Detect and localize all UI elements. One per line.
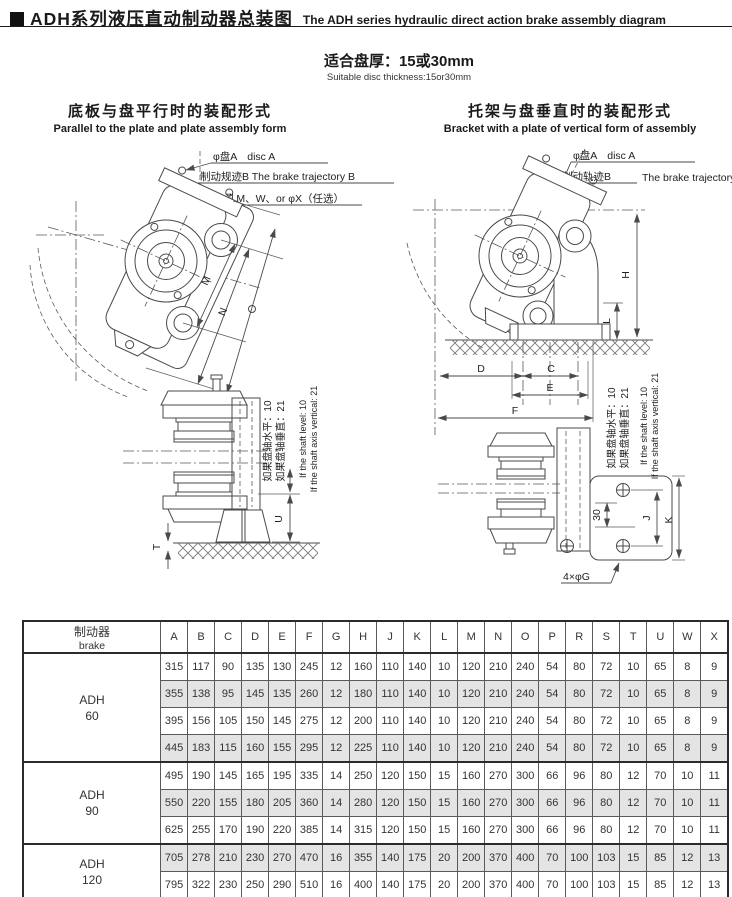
- table-cell: 54: [539, 735, 566, 763]
- table-cell: 225: [350, 735, 377, 763]
- table-cell: 120: [458, 681, 485, 708]
- table-cell: 85: [647, 844, 674, 872]
- table-cell: 400: [512, 872, 539, 897]
- table-cell: 155: [215, 790, 242, 817]
- table-cell: 80: [593, 817, 620, 845]
- spec-table: 制动器 brake ABCDEFGHJKLMNOPRSTUWX ADH60315…: [22, 620, 729, 897]
- table-cell: 140: [404, 681, 431, 708]
- table-cell: 66: [539, 817, 566, 845]
- right-note-en-level: If the shaft level: 10: [639, 387, 649, 465]
- table-cell: 70: [539, 872, 566, 897]
- table-cell: 400: [350, 872, 377, 897]
- table-cell: 70: [647, 817, 674, 845]
- table-cell: 145: [269, 708, 296, 735]
- table-cell: 210: [485, 735, 512, 763]
- col-header-d: D: [242, 621, 269, 653]
- table-cell: 240: [512, 653, 539, 681]
- right-diagram-heading: 托架与盘垂直时的装配形式 Bracket with a plate of ver…: [430, 100, 710, 135]
- dim-label-e: E: [546, 382, 553, 394]
- table-cell: 12: [620, 762, 647, 790]
- table-cell: 120: [458, 735, 485, 763]
- table-cell: 15: [431, 762, 458, 790]
- col-header-n: N: [485, 621, 512, 653]
- left-assembly-diagram: φ盘A disc A 制动规迹B The brake trajectory B …: [28, 143, 400, 605]
- table-cell: 190: [242, 817, 269, 845]
- table-cell: 220: [188, 790, 215, 817]
- table-cell: 200: [458, 872, 485, 897]
- col-header-x: X: [701, 621, 728, 653]
- table-cell: 11: [701, 790, 728, 817]
- col-header-e: E: [269, 621, 296, 653]
- table-cell: 495: [161, 762, 188, 790]
- dim-label-t: T: [151, 543, 163, 550]
- table-cell: 9: [701, 681, 728, 708]
- table-cell: 360: [296, 790, 323, 817]
- dim-label-c: C: [547, 363, 555, 375]
- table-cell: 175: [404, 872, 431, 897]
- table-cell: 65: [647, 681, 674, 708]
- table-cell: 220: [269, 817, 296, 845]
- table-cell: 9: [701, 653, 728, 681]
- col-header-f: F: [296, 621, 323, 653]
- brake-header-cell: 制动器 brake: [23, 621, 161, 653]
- page-title-en: The ADH series hydraulic direct action b…: [303, 10, 666, 27]
- table-cell: 270: [269, 844, 296, 872]
- table-cell: 210: [215, 844, 242, 872]
- table-cell: 195: [269, 762, 296, 790]
- col-header-r: R: [566, 621, 593, 653]
- table-cell: 65: [647, 653, 674, 681]
- model-cell-120: ADH120: [23, 844, 161, 897]
- table-cell: 14: [323, 817, 350, 845]
- table-cell: 335: [296, 762, 323, 790]
- table-cell: 16: [323, 872, 350, 897]
- table-cell: 280: [350, 790, 377, 817]
- table-cell: 66: [539, 762, 566, 790]
- right-trajectory-label-en: The brake trajectory B: [642, 172, 732, 184]
- table-cell: 8: [674, 653, 701, 681]
- page-title-zh: ADH系列液压直动制动器总装图: [30, 6, 293, 31]
- table-cell: 110: [377, 708, 404, 735]
- table-cell: 130: [269, 653, 296, 681]
- table-cell: 315: [161, 653, 188, 681]
- table-cell: 54: [539, 681, 566, 708]
- left-note-en-vertical: If the shaft axis vertical: 21: [309, 386, 319, 493]
- table-cell: 210: [485, 681, 512, 708]
- brake-header-zh: 制动器: [24, 623, 160, 640]
- table-cell: 140: [377, 844, 404, 872]
- table-cell: 160: [458, 790, 485, 817]
- col-header-u: U: [647, 621, 674, 653]
- table-cell: 205: [269, 790, 296, 817]
- table-cell: 150: [404, 790, 431, 817]
- table-cell: 270: [485, 762, 512, 790]
- table-cell: 160: [458, 817, 485, 845]
- brake-header-en: brake: [24, 640, 160, 652]
- table-cell: 10: [620, 681, 647, 708]
- left-heading-zh: 底板与盘平行时的装配形式: [30, 100, 310, 121]
- table-cell: 16: [323, 844, 350, 872]
- table-cell: 72: [593, 681, 620, 708]
- table-cell: 20: [431, 872, 458, 897]
- right-assembly-diagram: φ盘A disc A 制动轨迹B The brake trajectory B: [405, 143, 732, 605]
- table-cell: 80: [566, 653, 593, 681]
- table-cell: 230: [242, 844, 269, 872]
- table-cell: 370: [485, 872, 512, 897]
- table-cell: 230: [215, 872, 242, 897]
- table-cell: 70: [647, 762, 674, 790]
- table-cell: 103: [593, 844, 620, 872]
- table-cell: 12: [674, 872, 701, 897]
- table-cell: 200: [458, 844, 485, 872]
- table-cell: 165: [242, 762, 269, 790]
- dim-label-k: K: [663, 516, 675, 523]
- table-cell: 385: [296, 817, 323, 845]
- table-cell: 12: [323, 653, 350, 681]
- table-cell: 190: [188, 762, 215, 790]
- table-cell: 150: [404, 762, 431, 790]
- table-cell: 395: [161, 708, 188, 735]
- catalog-page: ADH系列液压直动制动器总装图 The ADH series hydraulic…: [0, 0, 732, 897]
- left-note-en-level: If the shaft level: 10: [298, 400, 308, 478]
- table-cell: 370: [485, 844, 512, 872]
- dim-label-l: L: [601, 318, 613, 324]
- table-cell: 145: [242, 681, 269, 708]
- table-cell: 15: [431, 817, 458, 845]
- col-header-s: S: [593, 621, 620, 653]
- table-cell: 120: [458, 708, 485, 735]
- table-cell: 10: [674, 817, 701, 845]
- table-cell: 10: [620, 735, 647, 763]
- table-cell: 100: [566, 872, 593, 897]
- table-cell: 103: [593, 872, 620, 897]
- table-cell: 270: [485, 790, 512, 817]
- table-cell: 90: [215, 653, 242, 681]
- table-cell: 96: [566, 762, 593, 790]
- table-cell: 20: [431, 844, 458, 872]
- right-holes-label: 4×φG: [563, 571, 590, 583]
- table-cell: 65: [647, 708, 674, 735]
- table-cell: 8: [674, 735, 701, 763]
- dim-label-n: N: [216, 306, 230, 317]
- table-cell: 625: [161, 817, 188, 845]
- table-cell: 10: [431, 735, 458, 763]
- table-cell: 72: [593, 735, 620, 763]
- table-cell: 11: [701, 817, 728, 845]
- left-trajectory-label: 制动规迹B The brake trajectory B: [200, 170, 355, 183]
- title-bullet-icon: [10, 12, 24, 26]
- table-cell: 145: [215, 762, 242, 790]
- table-cell: 705: [161, 844, 188, 872]
- table-row: ADH9049519014516519533514250120150151602…: [23, 762, 728, 790]
- table-cell: 160: [242, 735, 269, 763]
- table-cell: 10: [620, 708, 647, 735]
- table-cell: 355: [350, 844, 377, 872]
- table-cell: 180: [350, 681, 377, 708]
- table-row: ADH6031511790135130245121601101401012021…: [23, 653, 728, 681]
- table-cell: 15: [431, 790, 458, 817]
- table-cell: 96: [566, 817, 593, 845]
- col-header-k: K: [404, 621, 431, 653]
- table-cell: 135: [269, 681, 296, 708]
- table-cell: 255: [188, 817, 215, 845]
- table-cell: 155: [269, 735, 296, 763]
- right-note-en-vertical: If the shaft axis vertical: 21: [650, 373, 660, 480]
- page-subtitle: 适合盘厚：15或30mm Suitable disc thickness:15o…: [231, 50, 567, 83]
- table-cell: 322: [188, 872, 215, 897]
- dim-label-30: 30: [591, 509, 603, 521]
- col-header-g: G: [323, 621, 350, 653]
- dim-label-j: J: [641, 515, 653, 520]
- left-heading-en: Parallel to the plate and plate assembly…: [30, 123, 310, 135]
- table-cell: 8: [674, 681, 701, 708]
- table-cell: 10: [431, 681, 458, 708]
- table-cell: 110: [377, 681, 404, 708]
- table-cell: 250: [350, 762, 377, 790]
- spec-table-head-row: 制动器 brake ABCDEFGHJKLMNOPRSTUWX: [23, 621, 728, 653]
- table-cell: 510: [296, 872, 323, 897]
- table-cell: 470: [296, 844, 323, 872]
- table-cell: 9: [701, 708, 728, 735]
- table-cell: 80: [566, 681, 593, 708]
- table-cell: 138: [188, 681, 215, 708]
- table-cell: 80: [566, 735, 593, 763]
- table-cell: 275: [296, 708, 323, 735]
- table-cell: 200: [350, 708, 377, 735]
- table-cell: 115: [215, 735, 242, 763]
- table-cell: 183: [188, 735, 215, 763]
- table-cell: 110: [377, 735, 404, 763]
- table-cell: 54: [539, 708, 566, 735]
- table-cell: 140: [377, 872, 404, 897]
- table-cell: 80: [593, 762, 620, 790]
- col-header-a: A: [161, 621, 188, 653]
- table-cell: 13: [701, 844, 728, 872]
- table-cell: 250: [242, 872, 269, 897]
- table-cell: 65: [647, 735, 674, 763]
- table-cell: 96: [566, 790, 593, 817]
- table-cell: 240: [512, 708, 539, 735]
- table-cell: 175: [404, 844, 431, 872]
- table-cell: 105: [215, 708, 242, 735]
- right-heading-zh: 托架与盘垂直时的装配形式: [430, 100, 710, 121]
- model-cell-60: ADH60: [23, 653, 161, 762]
- table-cell: 85: [647, 872, 674, 897]
- table-cell: 8: [674, 708, 701, 735]
- table-cell: 355: [161, 681, 188, 708]
- subtitle-zh: 适合盘厚：15或30mm: [231, 50, 567, 71]
- table-cell: 10: [431, 653, 458, 681]
- table-cell: 150: [242, 708, 269, 735]
- table-cell: 9: [701, 735, 728, 763]
- table-cell: 15: [620, 844, 647, 872]
- table-cell: 12: [323, 708, 350, 735]
- dim-label-h: H: [620, 271, 632, 279]
- table-cell: 10: [620, 653, 647, 681]
- table-cell: 400: [512, 844, 539, 872]
- table-cell: 240: [512, 681, 539, 708]
- spec-table-body: ADH6031511790135130245121601101401012021…: [23, 653, 728, 897]
- header-rule: [0, 26, 732, 27]
- table-cell: 10: [674, 762, 701, 790]
- table-cell: 170: [215, 817, 242, 845]
- table-cell: 12: [620, 790, 647, 817]
- table-cell: 245: [296, 653, 323, 681]
- table-cell: 80: [593, 790, 620, 817]
- page-header: ADH系列液压直动制动器总装图 The ADH series hydraulic…: [10, 6, 666, 31]
- table-cell: 240: [512, 735, 539, 763]
- table-cell: 10: [674, 790, 701, 817]
- table-cell: 300: [512, 817, 539, 845]
- table-cell: 120: [377, 790, 404, 817]
- col-header-p: P: [539, 621, 566, 653]
- col-header-h: H: [350, 621, 377, 653]
- table-cell: 54: [539, 653, 566, 681]
- col-header-c: C: [215, 621, 242, 653]
- col-header-b: B: [188, 621, 215, 653]
- col-header-l: L: [431, 621, 458, 653]
- left-disc-label: φ盘A disc A: [213, 150, 275, 163]
- table-cell: 140: [404, 735, 431, 763]
- table-cell: 300: [512, 790, 539, 817]
- subtitle-en: Suitable disc thickness:15or30mm: [231, 72, 567, 83]
- dim-label-u: U: [273, 515, 285, 523]
- right-disc-label: φ盘A disc A: [573, 149, 635, 162]
- left-diagram-heading: 底板与盘平行时的装配形式 Parallel to the plate and p…: [30, 100, 310, 135]
- col-header-m: M: [458, 621, 485, 653]
- table-cell: 140: [404, 653, 431, 681]
- table-cell: 140: [404, 708, 431, 735]
- col-header-o: O: [512, 621, 539, 653]
- table-row: ADH1207052782102302704701635514017520200…: [23, 844, 728, 872]
- left-note-zh-level: 如果盘轴水平：10: [261, 400, 274, 482]
- table-cell: 100: [566, 844, 593, 872]
- table-cell: 10: [431, 708, 458, 735]
- right-heading-en: Bracket with a plate of vertical form of…: [430, 123, 710, 135]
- table-cell: 72: [593, 708, 620, 735]
- table-cell: 70: [647, 790, 674, 817]
- table-cell: 95: [215, 681, 242, 708]
- table-cell: 795: [161, 872, 188, 897]
- table-cell: 260: [296, 681, 323, 708]
- model-cell-90: ADH90: [23, 762, 161, 844]
- right-note-zh-level: 如果盘轴水平：10: [605, 387, 618, 469]
- dim-label-f: F: [512, 405, 518, 417]
- table-cell: 12: [323, 735, 350, 763]
- table-cell: 150: [404, 817, 431, 845]
- table-cell: 72: [593, 653, 620, 681]
- col-header-w: W: [674, 621, 701, 653]
- table-cell: 14: [323, 762, 350, 790]
- table-cell: 445: [161, 735, 188, 763]
- table-cell: 14: [323, 790, 350, 817]
- table-cell: 180: [242, 790, 269, 817]
- right-note-zh-vertical: 如果盘轴垂直：21: [618, 387, 631, 469]
- table-cell: 66: [539, 790, 566, 817]
- table-cell: 160: [458, 762, 485, 790]
- table-cell: 11: [701, 762, 728, 790]
- table-cell: 135: [242, 653, 269, 681]
- table-cell: 156: [188, 708, 215, 735]
- table-cell: 550: [161, 790, 188, 817]
- table-cell: 210: [485, 653, 512, 681]
- table-cell: 12: [674, 844, 701, 872]
- dim-label-d: D: [477, 363, 485, 375]
- table-cell: 295: [296, 735, 323, 763]
- table-cell: 110: [377, 653, 404, 681]
- table-cell: 70: [539, 844, 566, 872]
- table-cell: 270: [485, 817, 512, 845]
- table-cell: 210: [485, 708, 512, 735]
- table-cell: 15: [620, 872, 647, 897]
- table-cell: 120: [377, 817, 404, 845]
- table-cell: 278: [188, 844, 215, 872]
- table-cell: 290: [269, 872, 296, 897]
- table-cell: 160: [350, 653, 377, 681]
- table-cell: 300: [512, 762, 539, 790]
- table-cell: 12: [323, 681, 350, 708]
- table-cell: 315: [350, 817, 377, 845]
- table-cell: 120: [458, 653, 485, 681]
- table-cell: 117: [188, 653, 215, 681]
- table-cell: 12: [620, 817, 647, 845]
- table-cell: 13: [701, 872, 728, 897]
- col-header-j: J: [377, 621, 404, 653]
- left-note-zh-vertical: 如果盘轴垂直：21: [274, 400, 287, 482]
- col-header-t: T: [620, 621, 647, 653]
- table-cell: 120: [377, 762, 404, 790]
- table-cell: 80: [566, 708, 593, 735]
